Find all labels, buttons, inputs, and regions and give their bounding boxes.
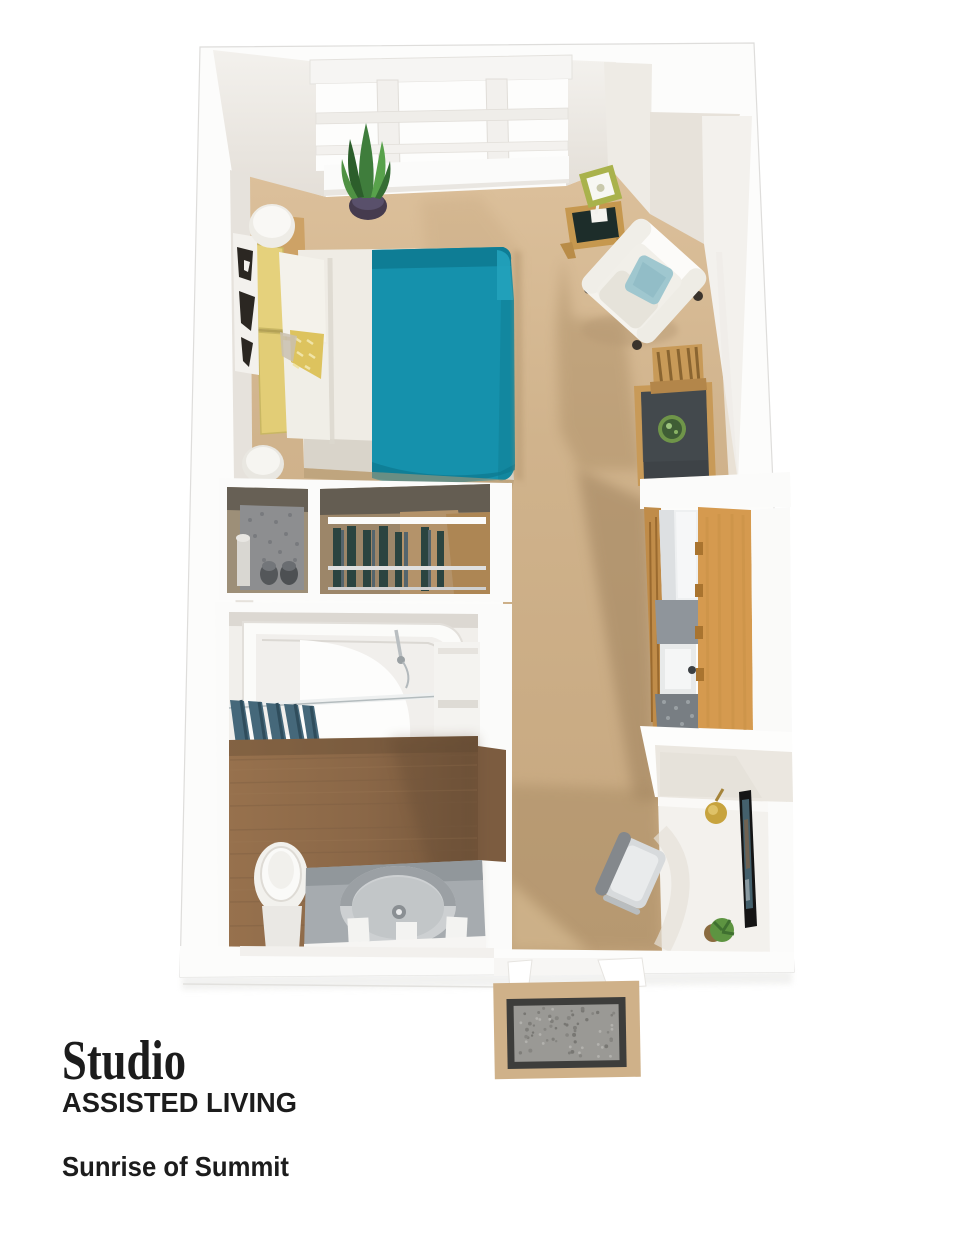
svg-text:Studio: Studio xyxy=(62,1030,186,1092)
svg-text:Sunrise of Summit: Sunrise of Summit xyxy=(62,1151,289,1182)
svg-text:ASSISTED LIVING: ASSISTED LIVING xyxy=(62,1087,297,1118)
